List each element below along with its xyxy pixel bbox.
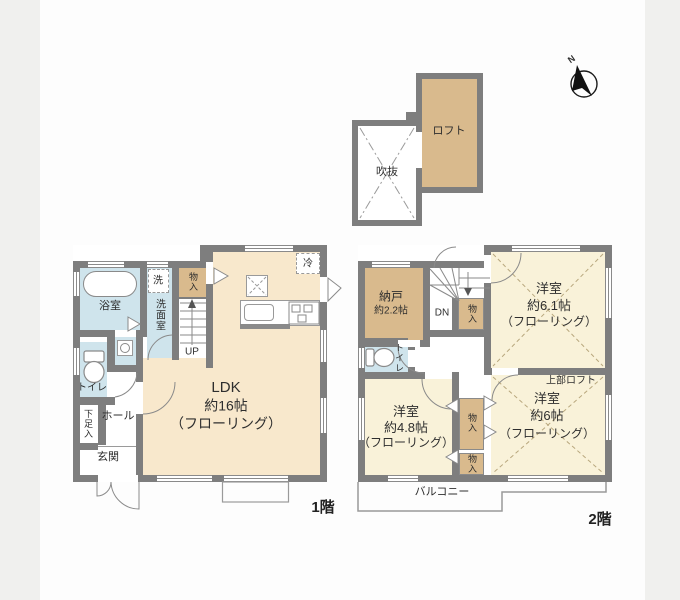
wall — [172, 261, 179, 360]
window — [88, 261, 124, 268]
window — [358, 348, 365, 368]
wall — [452, 372, 459, 475]
window — [73, 272, 80, 296]
closet-stairs-label: 物入 — [466, 304, 476, 324]
washroom-label: 洗面室 — [154, 299, 165, 332]
window — [245, 245, 293, 252]
void-label: 吹抜 — [376, 166, 398, 178]
storage-name-label: 納戸 — [379, 290, 403, 303]
right-margin-band — [645, 0, 680, 600]
loft-wall-stub — [406, 112, 418, 120]
room61-door-opening — [484, 255, 491, 283]
window — [147, 261, 168, 268]
room48-finish-label: （フローリング） — [358, 436, 454, 449]
room61-size-label: 約6.1帖 — [527, 299, 571, 313]
bath-label: 浴室 — [99, 300, 121, 312]
left-margin-band — [0, 0, 40, 600]
room48-door-opening — [425, 372, 452, 379]
room61-name-label: 洋室 — [536, 282, 562, 296]
wall — [423, 261, 430, 340]
counter-edge — [240, 324, 290, 329]
toilet-door-opening — [107, 372, 115, 397]
hall-ldk-opening — [136, 382, 143, 414]
room48-size-label: 約4.8帖 — [384, 421, 428, 435]
room6-name-label: 洋室 — [534, 392, 560, 406]
stair-closet-divider — [179, 297, 206, 299]
wall — [107, 365, 136, 372]
balcony-outline — [358, 482, 606, 511]
closet-lower-label: 物入 — [466, 454, 476, 474]
entrance-door-opening — [98, 475, 138, 482]
loft-label: ロフト — [433, 125, 466, 137]
north-compass-icon — [571, 65, 597, 97]
window — [605, 268, 612, 318]
window — [224, 475, 288, 482]
void-loft-opening — [416, 132, 422, 168]
bathtub-icon — [83, 271, 137, 297]
room61-finish-label: （フローリング） — [501, 315, 597, 328]
terrace-outline — [223, 482, 289, 502]
room6-size-label: 約6帖 — [530, 409, 563, 423]
room-storage — [365, 268, 423, 340]
toilet2-door-opening — [408, 350, 415, 367]
window — [605, 395, 612, 440]
window — [508, 475, 568, 482]
floor1-label: 1階 — [311, 500, 334, 517]
entrance-step-line — [98, 446, 136, 447]
entrance-subdoor-arc — [97, 482, 111, 496]
window — [320, 398, 327, 433]
shoe-closet-label: 下足入 — [82, 409, 92, 439]
washer-label: 洗 — [153, 276, 163, 287]
wall — [423, 330, 491, 337]
fridge-label: 冷 — [303, 259, 313, 270]
stairs-down-label: DN — [435, 308, 449, 319]
window — [320, 330, 327, 362]
closet-f1-label: 物入 — [187, 272, 197, 292]
ldk-finish-label: （フローリング） — [170, 416, 282, 431]
balcony-label: バルコニー — [415, 486, 470, 498]
toilet-f2-label: トイレ — [393, 343, 403, 373]
floor2-label: 2階 — [588, 512, 611, 529]
entrance-door-arc — [111, 482, 139, 509]
upper-loft-label: 上部ロフト — [546, 376, 596, 387]
window — [512, 245, 580, 252]
window — [358, 398, 365, 440]
wall — [73, 397, 115, 405]
hall-label: ホール — [102, 410, 135, 422]
floorplan-canvas: N 吹抜 ロフト 浴室 洗 洗面室 物入 UP トイレ 下足入 ホール 玄関 冷… — [0, 0, 680, 600]
stairs-up-label: UP — [185, 347, 199, 358]
closet-upper-label: 物入 — [466, 413, 476, 433]
window — [73, 348, 80, 375]
room48-name-label: 洋室 — [393, 405, 419, 419]
stair-top-opening — [206, 262, 213, 284]
room6-door-opening — [492, 368, 518, 375]
wall — [140, 261, 147, 337]
north-label: N — [567, 54, 578, 66]
window — [388, 475, 418, 482]
window — [157, 475, 212, 482]
toilet-f1-label: トイレ — [77, 383, 107, 394]
ldk-name-label: LDK — [211, 380, 240, 397]
room6-finish-label: （フローリング） — [499, 427, 595, 440]
back-door-opening — [320, 277, 327, 302]
kitchen-sink-icon — [244, 304, 274, 321]
washbasin-icon — [117, 340, 133, 356]
wall — [73, 443, 98, 450]
ceiling-light-icon — [246, 275, 268, 297]
entrance-label: 玄関 — [97, 451, 119, 463]
ldk-size-label: 約16帖 — [204, 398, 248, 413]
window — [372, 261, 410, 268]
storage-size-label: 約2.2帖 — [374, 306, 408, 317]
